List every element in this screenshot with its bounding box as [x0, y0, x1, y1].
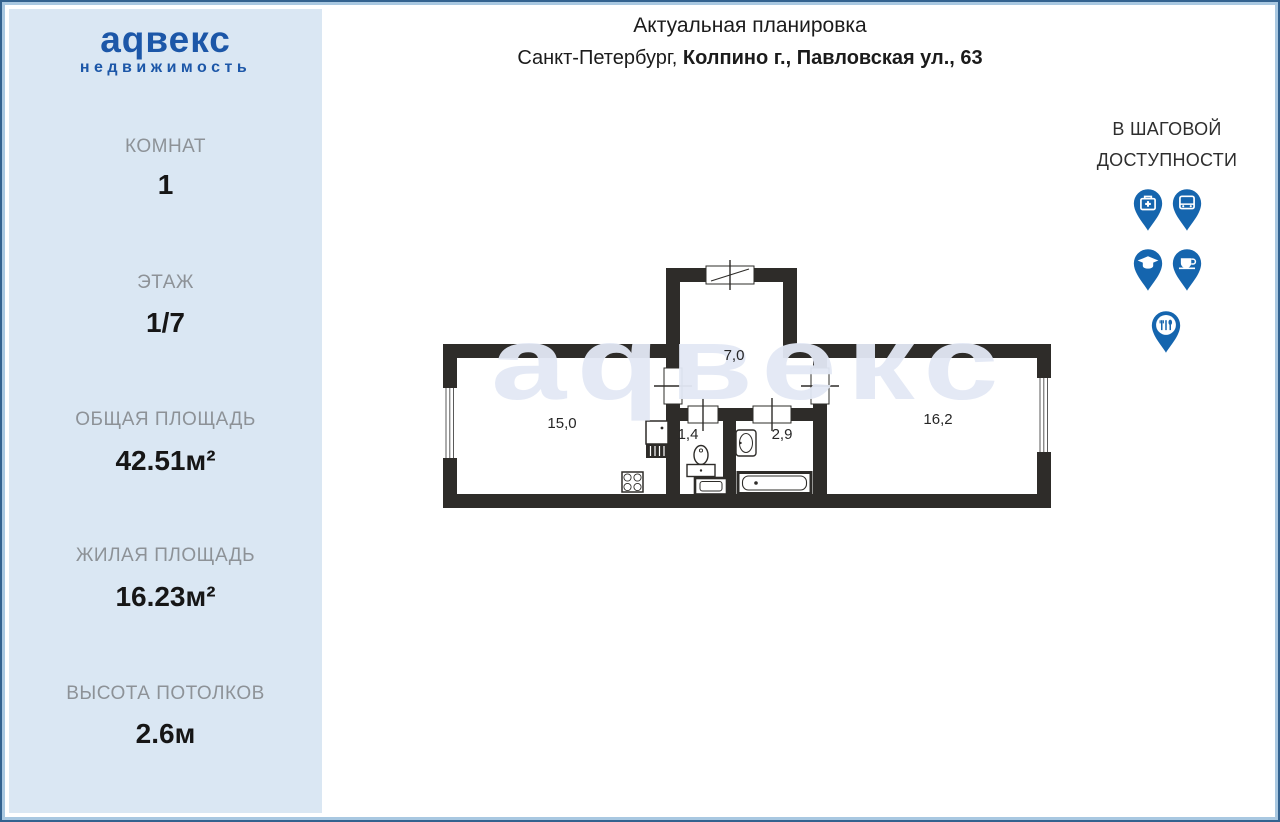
floorplan-drawing: [440, 258, 1060, 518]
page-title: Актуальная планировка: [440, 14, 1060, 38]
cafe-pin-icon: [1170, 248, 1204, 292]
amenities-title-line1: В ШАГОВОЙ: [1072, 119, 1262, 140]
wall-top-right-room: [783, 344, 1051, 358]
kitchen-heater: [646, 444, 668, 458]
wall-top-left-room: [443, 344, 680, 358]
room-area-label-room: 16,2: [906, 411, 970, 428]
floor-value: 1/7: [9, 307, 322, 339]
ceiling-height-value: 2.6м: [9, 718, 322, 750]
amenities-title-line2: ДОСТУПНОСТИ: [1072, 150, 1262, 171]
education-pin-icon: [1131, 248, 1165, 292]
room-area-label-wc: 1,4: [656, 426, 720, 443]
room-area-label-kitchen: 15,0: [530, 415, 594, 432]
address-street: Колпино г., Павловская ул., 63: [683, 47, 983, 69]
address-city: Санкт-Петербург,: [517, 47, 683, 69]
restaurant-pin-icon: [1149, 310, 1183, 354]
total-area-value: 42.51м²: [9, 445, 322, 477]
toilet-bowl: [694, 446, 708, 465]
ceiling-height-label: ВЫСОТА ПОТОЛКОВ: [9, 683, 322, 705]
floor-label: ЭТАЖ: [9, 272, 322, 294]
sidebar: аqвекс недвижимость КОМНАТ 1 ЭТАЖ 1/7 ОБ…: [9, 9, 322, 813]
rooms-count-value: 1: [9, 169, 322, 201]
wall-outer-bottom: [443, 494, 1051, 508]
address-line: Санкт-Петербург, Колпино г., Павловская …: [240, 47, 1260, 70]
living-area-value: 16.23м²: [9, 581, 322, 613]
wc-fixtures: [687, 446, 727, 495]
room-area-label-hallway: 7,0: [702, 347, 766, 364]
medical-pin-icon: [1131, 188, 1165, 232]
rooms-count-label: КОМНАТ: [9, 136, 322, 158]
bus-pin-icon: [1170, 188, 1204, 232]
total-area-label: ОБЩАЯ ПЛОЩАДЬ: [9, 409, 322, 431]
room-area-label-bathroom: 2,9: [750, 426, 814, 443]
living-area-label: ЖИЛАЯ ПЛОЩАДЬ: [9, 545, 322, 567]
